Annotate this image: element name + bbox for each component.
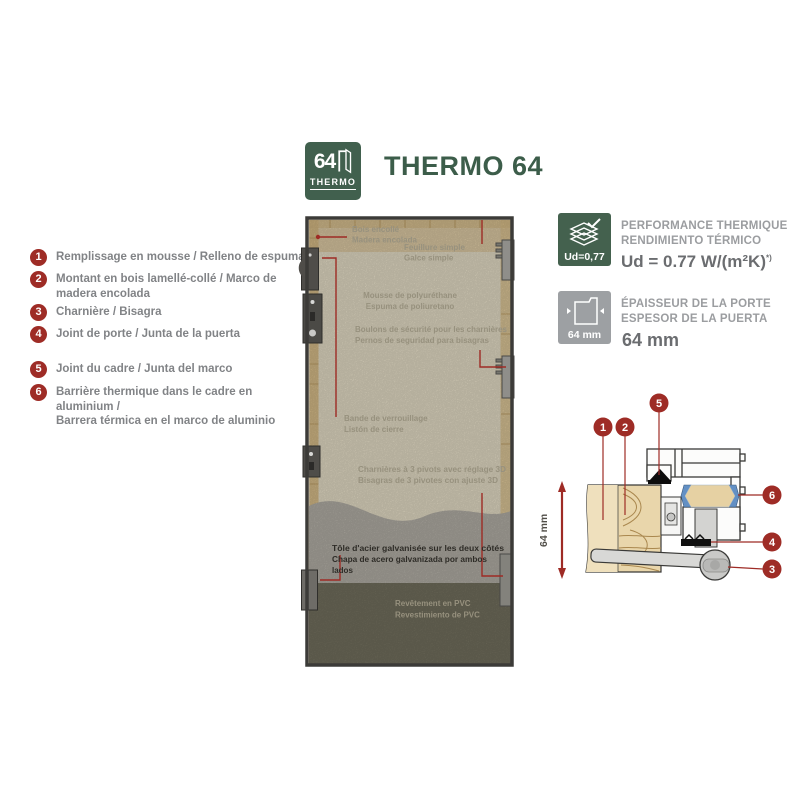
page-title: THERMO 64: [384, 151, 543, 182]
label-bolts-fr: Boulons de sécurité pour les charnières: [355, 325, 508, 334]
legend-label: Joint de porte / Junta de la puerta: [56, 326, 311, 343]
leader-dot: [316, 235, 320, 239]
label-locking-strip-es: Listón de cierre: [344, 425, 404, 434]
insulation-layers-icon: [567, 218, 603, 246]
door-thickness-title: ÉPAISSEUR DE LA PORTE ESPESOR DE LA PUER…: [621, 297, 771, 327]
door-thickness-icon: 64 mm: [558, 291, 611, 344]
legend-number-badge: 1: [30, 249, 47, 266]
thermo64-logo: 64 THERMO: [305, 142, 361, 200]
label-steel-fr: Tôle d'acier galvanisée sur les deux côt…: [332, 544, 505, 553]
door-profile-icon: [565, 296, 605, 326]
thermal-performance-value: Ud = 0.77 W/(m²K)*): [621, 252, 772, 272]
arrow-left-icon: [600, 308, 604, 314]
legend-item-6: 6 Barrière thermique dans le cadre en al…: [30, 384, 322, 429]
callout-5-num: 5: [656, 398, 662, 410]
callout-6-num: 6: [769, 490, 775, 502]
legend-number-badge: 4: [30, 326, 47, 343]
bottom-left-fitting: [302, 570, 318, 610]
label-rebate-fr: Feuillure simple: [404, 243, 465, 252]
legend-label: Charnière / Bisagra: [56, 304, 311, 321]
legend-item-1: 1 Remplissage en mousse / Relleno de esp…: [30, 249, 322, 266]
label-locking-strip-fr: Bande de verrouillage: [344, 414, 428, 423]
legend-label-fr: Barrière thermique dans le cadre en alum…: [56, 386, 252, 413]
label-hinges-fr: Charnières à 3 pivots avec réglage 3D: [358, 465, 506, 474]
thermal-break: [681, 485, 739, 507]
thickness-badge: 64 mm: [558, 329, 611, 341]
thermal-title-fr: PERFORMANCE THERMIQUE: [621, 219, 787, 234]
legend-item-4: 4 Joint de porte / Junta de la puerta: [30, 326, 322, 343]
legend-number-badge: 6: [30, 384, 47, 401]
ud-value: Ud = 0.77 W/(m²K): [621, 252, 766, 271]
thermo64-datasheet: 64 THERMO THERMO 64 1 Remplissage en mou…: [0, 0, 800, 800]
label-foam-es: Espuma de poliuretano: [366, 302, 455, 311]
label-foam-fr: Mousse de polyuréthane: [363, 291, 457, 300]
logo-number: 64: [314, 151, 335, 172]
arrow-right-icon: [567, 308, 571, 314]
dimension-64mm: 64 mm: [538, 481, 566, 579]
legend-number-badge: 2: [30, 271, 47, 288]
legend-item-5: 5 Joint du cadre / Junta del marco: [30, 361, 322, 378]
label-pvc-es: Revestimiento de PVC: [395, 611, 480, 620]
label-steel-es1: Chapa de acero galvanizada por ambos: [332, 555, 488, 564]
edge-hardware: [661, 497, 681, 535]
legend-item-3: 3 Charnière / Bisagra: [30, 304, 322, 321]
callout-2-num: 2: [622, 422, 628, 434]
label-bolts-es: Pernos de seguridad para bisagras: [355, 336, 490, 345]
label-glued-wood-fr: Bois encollé: [352, 225, 400, 234]
footnote-marker: *): [766, 253, 772, 262]
logo-row: 64: [314, 148, 352, 174]
callout-1-num: 1: [600, 422, 606, 434]
thermal-title-es: RENDIMIENTO TÉRMICO: [621, 234, 787, 249]
legend-number-badge: 3: [30, 304, 47, 321]
legend-number-badge: 5: [30, 361, 47, 378]
thermal-performance-title: PERFORMANCE THERMIQUE RENDIMIENTO TÉRMIC…: [621, 219, 787, 249]
label-steel-es2: lados: [332, 566, 353, 575]
label-pvc-fr: Revêtement en PVC: [395, 599, 471, 608]
surface-texture: [309, 220, 511, 664]
hinge-barrel: [700, 550, 730, 580]
legend-label: Barrière thermique dans le cadre en alum…: [56, 384, 311, 429]
open-door-icon: [337, 148, 352, 174]
dimension-label: 64 mm: [538, 514, 550, 547]
door-diagram: Bois encollé Madera encolada Feuillure s…: [300, 214, 520, 669]
hinge-bottom: [500, 554, 512, 606]
legend-item-2: 2 Montant en bois lamellé-collé / Marco …: [30, 271, 322, 301]
thermal-performance-icon: Ud=0,77: [558, 213, 611, 266]
callout-3-num: 3: [769, 564, 775, 576]
callout-4-num: 4: [769, 537, 776, 549]
legend-label: Montant en bois lamellé-collé / Marco de…: [56, 271, 311, 301]
label-rebate-es: Galce simple: [404, 254, 454, 263]
ud-value-badge: Ud=0,77: [558, 251, 611, 263]
keyhole: [310, 312, 315, 321]
legend-label-es: Barrera térmica en el marco de aluminio: [56, 415, 275, 427]
door-thickness-value: 64 mm: [622, 330, 679, 351]
thickness-title-fr: ÉPAISSEUR DE LA PORTE: [621, 297, 771, 312]
frame-cross-section: 64 mm: [535, 385, 800, 600]
legend-label: Joint du cadre / Junta del marco: [56, 361, 311, 378]
label-hinges-es: Bisagras de 3 pivotes con ajuste 3D: [358, 476, 498, 485]
logo-brand-label: THERMO: [310, 177, 356, 190]
thickness-title-es: ESPESOR DE LA PUERTA: [621, 312, 771, 327]
legend-label: Remplissage en mousse / Relleno de espum…: [56, 249, 311, 266]
